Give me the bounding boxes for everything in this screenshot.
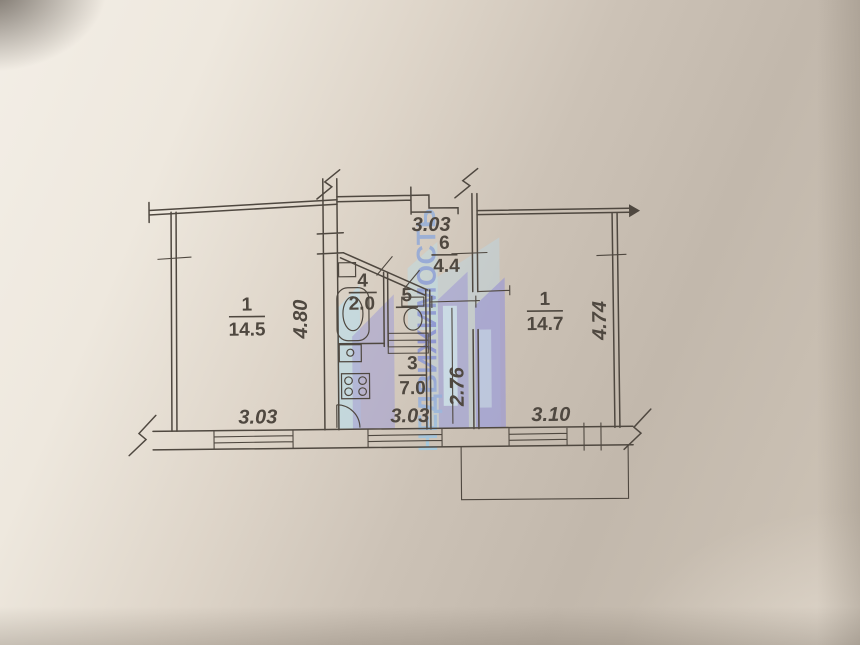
right-wall xyxy=(612,213,620,427)
left-dim-tick xyxy=(157,257,191,259)
bath-door-slash xyxy=(376,256,392,275)
room-label-bathroom-number: 4 xyxy=(357,271,368,292)
dimension-bottom-left: 3.03 xyxy=(238,406,277,428)
floor-plan-photo: НЕДВИЖИМОСТЬ xyxy=(0,0,860,645)
bottom-wall xyxy=(153,426,633,450)
room-label-bathroom-area: 2.0 xyxy=(349,293,376,314)
left-wall xyxy=(170,212,178,431)
window-symbol-3 xyxy=(509,428,567,447)
room-label-right-area: 14.7 xyxy=(526,314,563,335)
room-label-left-area: 14.5 xyxy=(228,319,266,340)
washbasin-icon xyxy=(338,263,355,277)
room-label-hallway-number: 6 xyxy=(439,233,450,254)
dimension-right-vertical: 4.74 xyxy=(589,301,611,341)
right-dim-tick xyxy=(596,254,626,255)
right-balcony-rail xyxy=(477,208,629,214)
room-label-toilet-number: 5 xyxy=(401,285,412,306)
entry-wall-break xyxy=(455,169,478,198)
room-label-hallway-area: 4.4 xyxy=(433,256,460,277)
balcony-outline xyxy=(461,445,628,499)
dimension-top: 3.03 xyxy=(412,214,451,236)
room-label-left-number: 1 xyxy=(241,295,252,316)
dimension-left-vertical: 4.80 xyxy=(290,300,312,340)
dimension-middle-vertical: 2.76 xyxy=(446,366,468,407)
left-balcony-rail xyxy=(149,200,337,223)
room-label-kitchen-area: 7.0 xyxy=(399,378,426,399)
room-label-right-number: 1 xyxy=(539,289,550,310)
floor-plan-svg: НЕДВИЖИМОСТЬ xyxy=(0,0,860,645)
dimension-bottom-right: 3.10 xyxy=(531,404,570,426)
watermark-window-strip-2 xyxy=(479,329,492,407)
rail-arrow xyxy=(629,204,640,217)
window-symbol-1 xyxy=(214,430,293,449)
dimension-bottom-center: 3.03 xyxy=(390,405,429,427)
room-label-kitchen-number: 3 xyxy=(407,353,418,374)
